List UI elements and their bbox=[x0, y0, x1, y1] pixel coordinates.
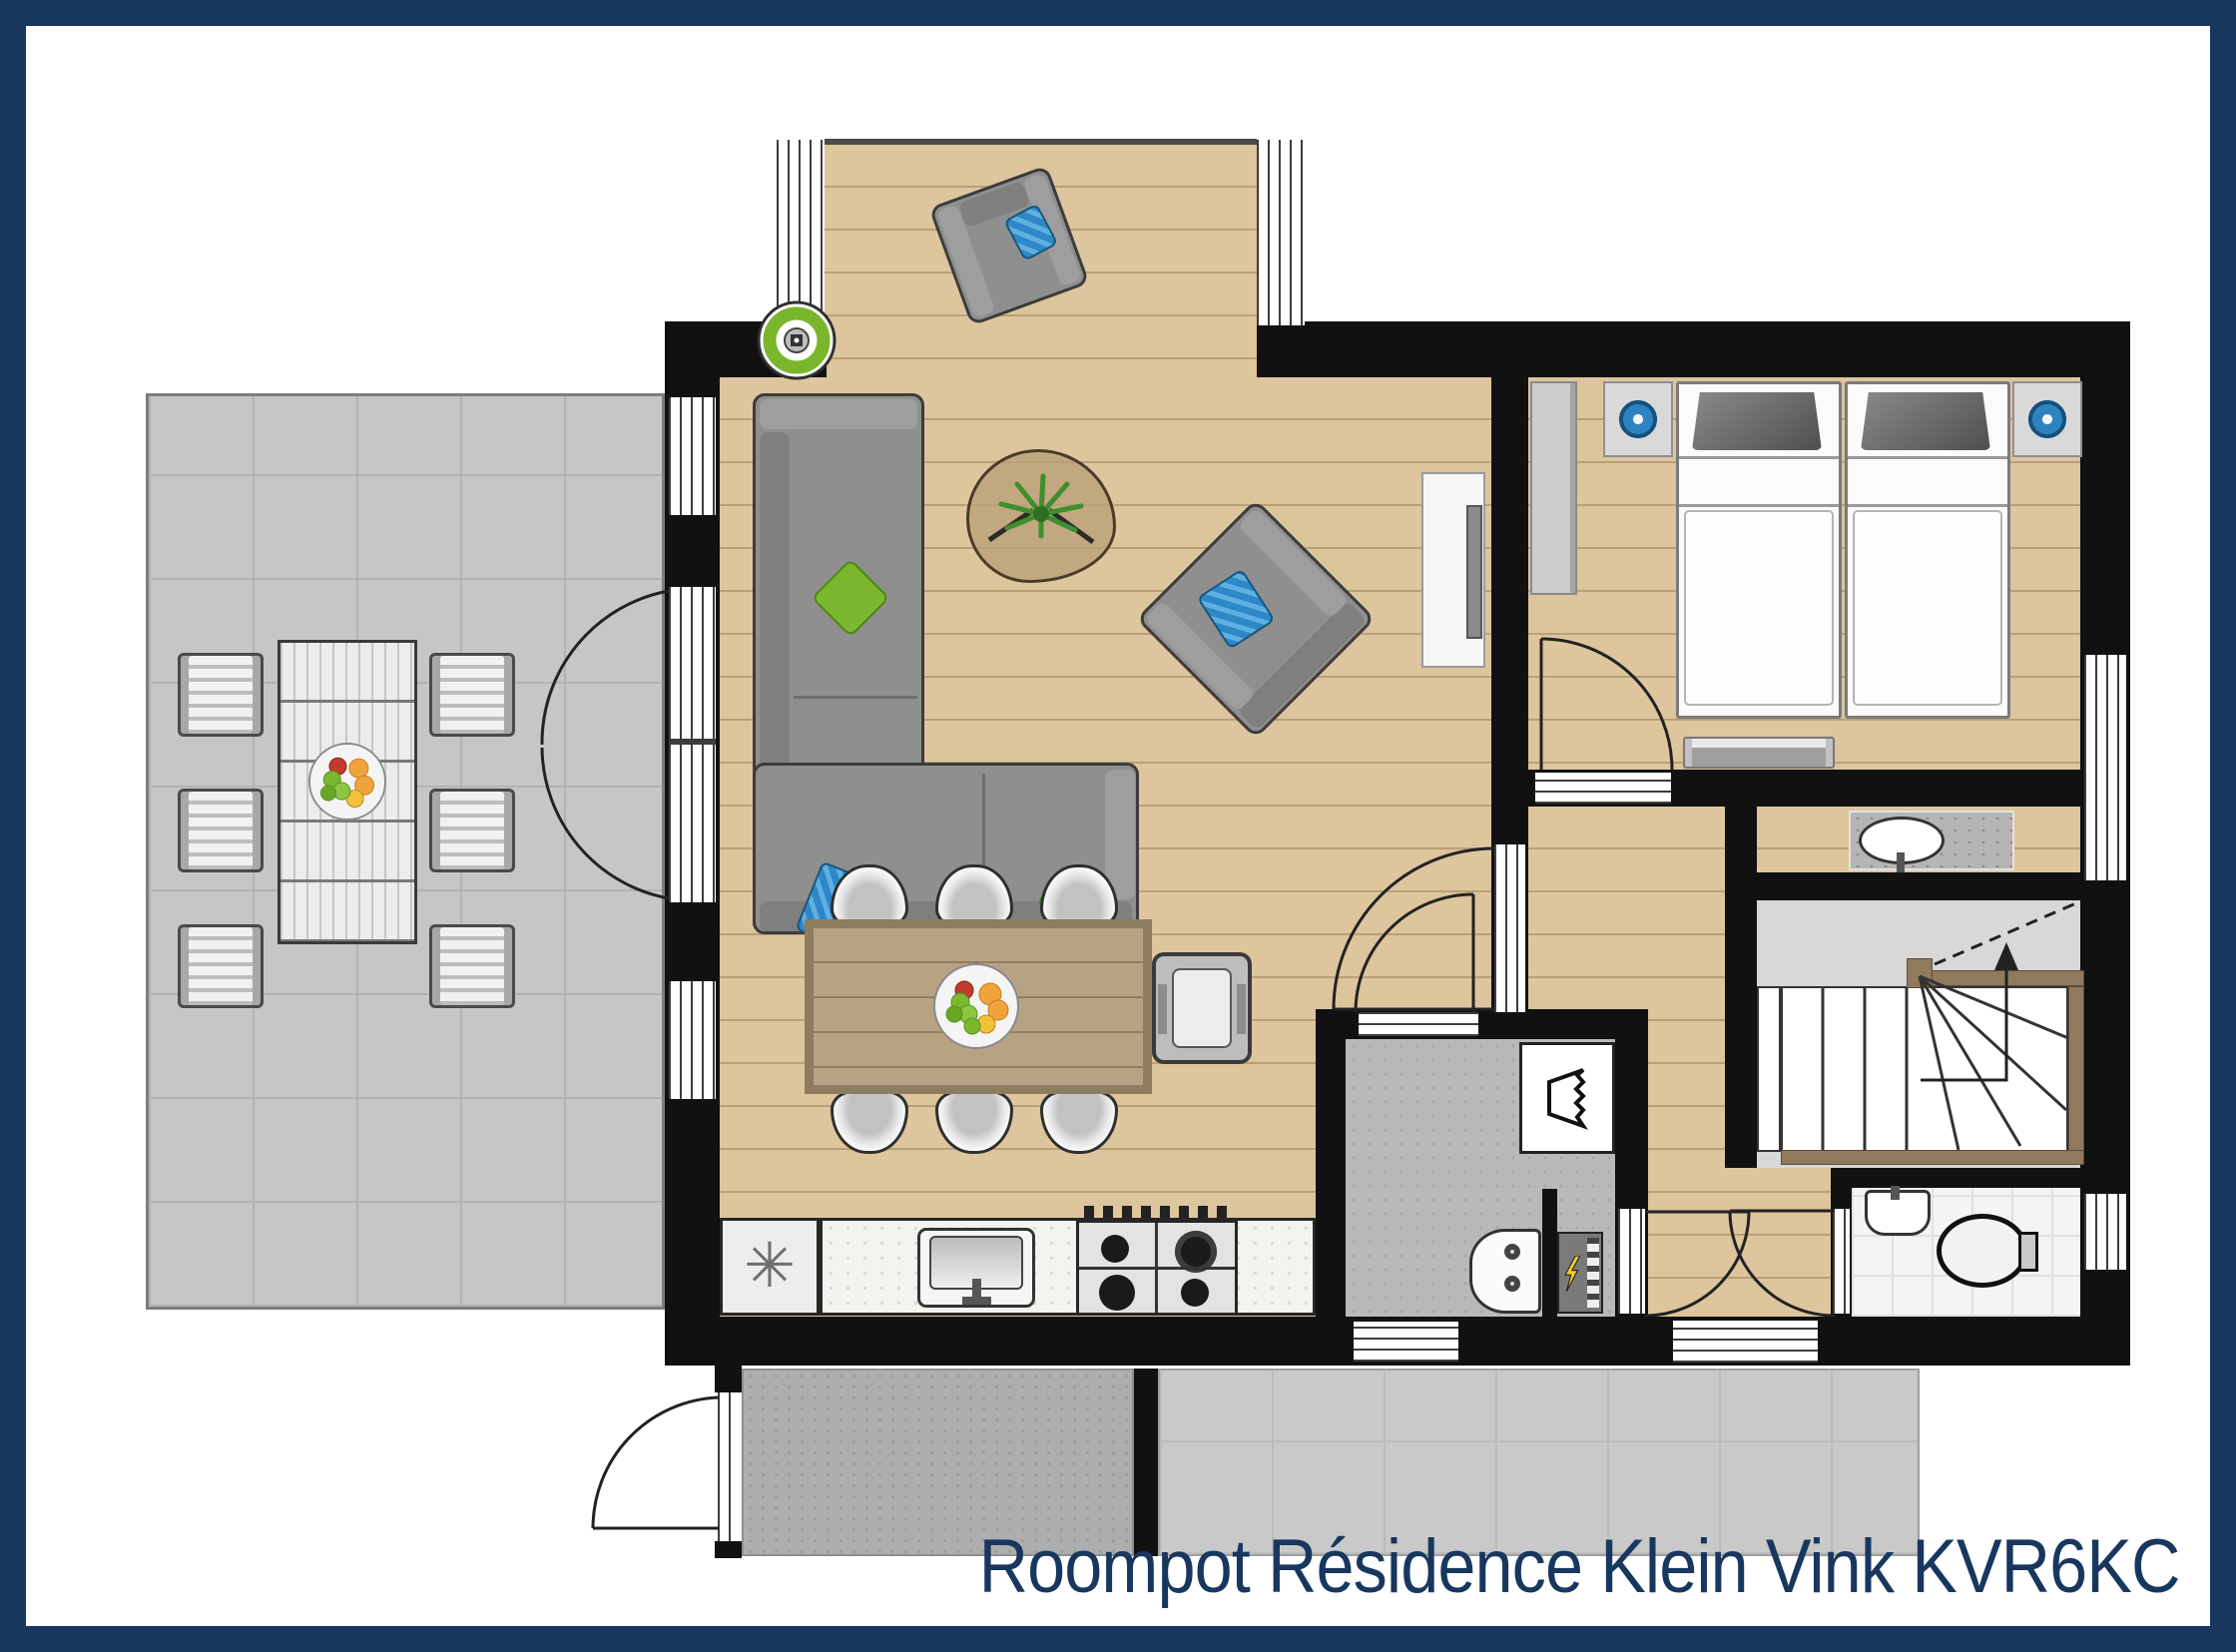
freezer-snowflake-icon: ✳ bbox=[744, 1236, 796, 1298]
plan-title: Roompot Résidence Klein Vink KVR6KC bbox=[979, 1523, 2180, 1610]
pillow-bed-left bbox=[1692, 392, 1822, 450]
wall-utility-left bbox=[1316, 1009, 1346, 1317]
nightstand-left bbox=[1603, 381, 1673, 457]
bed-right-sheetline bbox=[1848, 504, 2007, 507]
outdoor-chair-4 bbox=[429, 653, 515, 737]
stairs-rim-top bbox=[1923, 970, 2084, 986]
bay-top-edge bbox=[825, 139, 1257, 145]
stairs-treads bbox=[1781, 986, 2068, 1152]
stove-grid-h bbox=[1079, 1267, 1235, 1270]
bed-left-sheetline bbox=[1679, 504, 1839, 507]
pillow-bed-right bbox=[1861, 392, 1990, 450]
wardrobe bbox=[1530, 381, 1577, 595]
toilet-tank bbox=[2018, 1232, 2038, 1272]
bed-right bbox=[1845, 381, 2010, 719]
breaker-strip bbox=[1587, 1238, 1599, 1308]
meter-door-threshold bbox=[1618, 1209, 1645, 1314]
stairs-rim-right bbox=[2068, 986, 2084, 1152]
outdoor-chair-6 bbox=[429, 924, 515, 1008]
toilet-bowl bbox=[1937, 1214, 2028, 1288]
wall-stairs-left bbox=[1725, 807, 1757, 1168]
high-chair-bar-left bbox=[1158, 984, 1167, 1034]
bed-left-headline bbox=[1679, 456, 1839, 459]
utility-door-threshold bbox=[1359, 1012, 1478, 1036]
window-utility bbox=[1354, 1322, 1458, 1362]
window-bay-right bbox=[1257, 140, 1305, 325]
bedside-lamp-right bbox=[2024, 396, 2070, 442]
toilet-hand-basin-tap bbox=[1891, 1186, 1900, 1200]
hall-door-threshold bbox=[1494, 844, 1525, 1012]
duvet-bed-right bbox=[1853, 510, 2002, 706]
wall-meter-divider bbox=[1542, 1189, 1557, 1317]
high-chair bbox=[1152, 952, 1252, 1064]
french-door-mullion bbox=[669, 739, 716, 745]
burner-4 bbox=[1181, 1279, 1209, 1307]
duvet-bed-left bbox=[1684, 510, 1834, 706]
sofa-seat-divider bbox=[794, 696, 917, 699]
bed-right-headline bbox=[1848, 456, 2007, 459]
washer-knob-1 bbox=[1504, 1244, 1520, 1260]
porch-door-threshold bbox=[718, 1392, 739, 1541]
washing-machine bbox=[1469, 1229, 1541, 1314]
stairs-rim-bottom bbox=[1781, 1150, 2084, 1165]
window-toilet-right bbox=[2084, 1194, 2126, 1270]
stairs-entry-riser bbox=[1757, 986, 1781, 1152]
french-door-threshold bbox=[669, 587, 716, 902]
outdoor-chair-3 bbox=[178, 924, 264, 1008]
bedroom-shelf bbox=[1683, 737, 1835, 769]
freezer: ✳ bbox=[720, 1218, 820, 1316]
floor-plan-page: ✳ bbox=[0, 0, 2236, 1652]
wall-top-right bbox=[1257, 321, 2130, 377]
window-living-left-1 bbox=[669, 397, 716, 515]
wall-porch-stub-a bbox=[715, 1366, 742, 1392]
window-bay-left bbox=[777, 140, 825, 325]
kitchen-counter bbox=[820, 1218, 1316, 1316]
high-chair-seat bbox=[1172, 968, 1232, 1048]
back-door-threshold bbox=[1673, 1321, 1818, 1363]
window-living-left-2 bbox=[669, 981, 716, 1099]
boiler bbox=[1519, 1042, 1615, 1154]
blue-pillow-armchair bbox=[1197, 568, 1276, 649]
toilet-door-threshold bbox=[1833, 1209, 1850, 1314]
stove bbox=[1076, 1220, 1238, 1316]
wall-stairs-top bbox=[1757, 872, 2084, 900]
burner-3 bbox=[1099, 1275, 1135, 1311]
bedside-lamp-left bbox=[1615, 396, 1661, 442]
outdoor-table bbox=[278, 640, 417, 944]
boiler-crown-icon bbox=[1537, 1066, 1597, 1130]
electric-meter-panel bbox=[1557, 1232, 1603, 1314]
sink-faucet-base bbox=[962, 1297, 991, 1305]
burner-1 bbox=[1101, 1235, 1129, 1263]
nightstand-right bbox=[2012, 381, 2082, 457]
wall-toilet-top bbox=[1831, 1168, 2080, 1188]
wall-porch-stub-b bbox=[715, 1541, 742, 1558]
outdoor-chair-2 bbox=[178, 789, 264, 872]
tv-screen bbox=[1466, 505, 1482, 639]
lightning-icon bbox=[1563, 1256, 1583, 1292]
porch-door-arc bbox=[593, 1397, 719, 1528]
dining-table bbox=[805, 919, 1152, 1094]
hall-basin-tap bbox=[1897, 852, 1905, 872]
bed-left bbox=[1676, 381, 1842, 719]
bedroom-door-threshold bbox=[1535, 773, 1671, 804]
kitchen-sink bbox=[917, 1228, 1035, 1308]
outdoor-chair-5 bbox=[429, 789, 515, 872]
high-chair-bar-right bbox=[1237, 984, 1246, 1034]
sofa-armrest-top bbox=[760, 399, 917, 429]
window-bedroom-right bbox=[2084, 655, 2126, 880]
washer-knob-2 bbox=[1504, 1276, 1520, 1292]
outdoor-chair-1 bbox=[178, 653, 264, 737]
stove-knob-strip bbox=[1084, 1206, 1234, 1218]
stairs-newel bbox=[1907, 958, 1933, 988]
